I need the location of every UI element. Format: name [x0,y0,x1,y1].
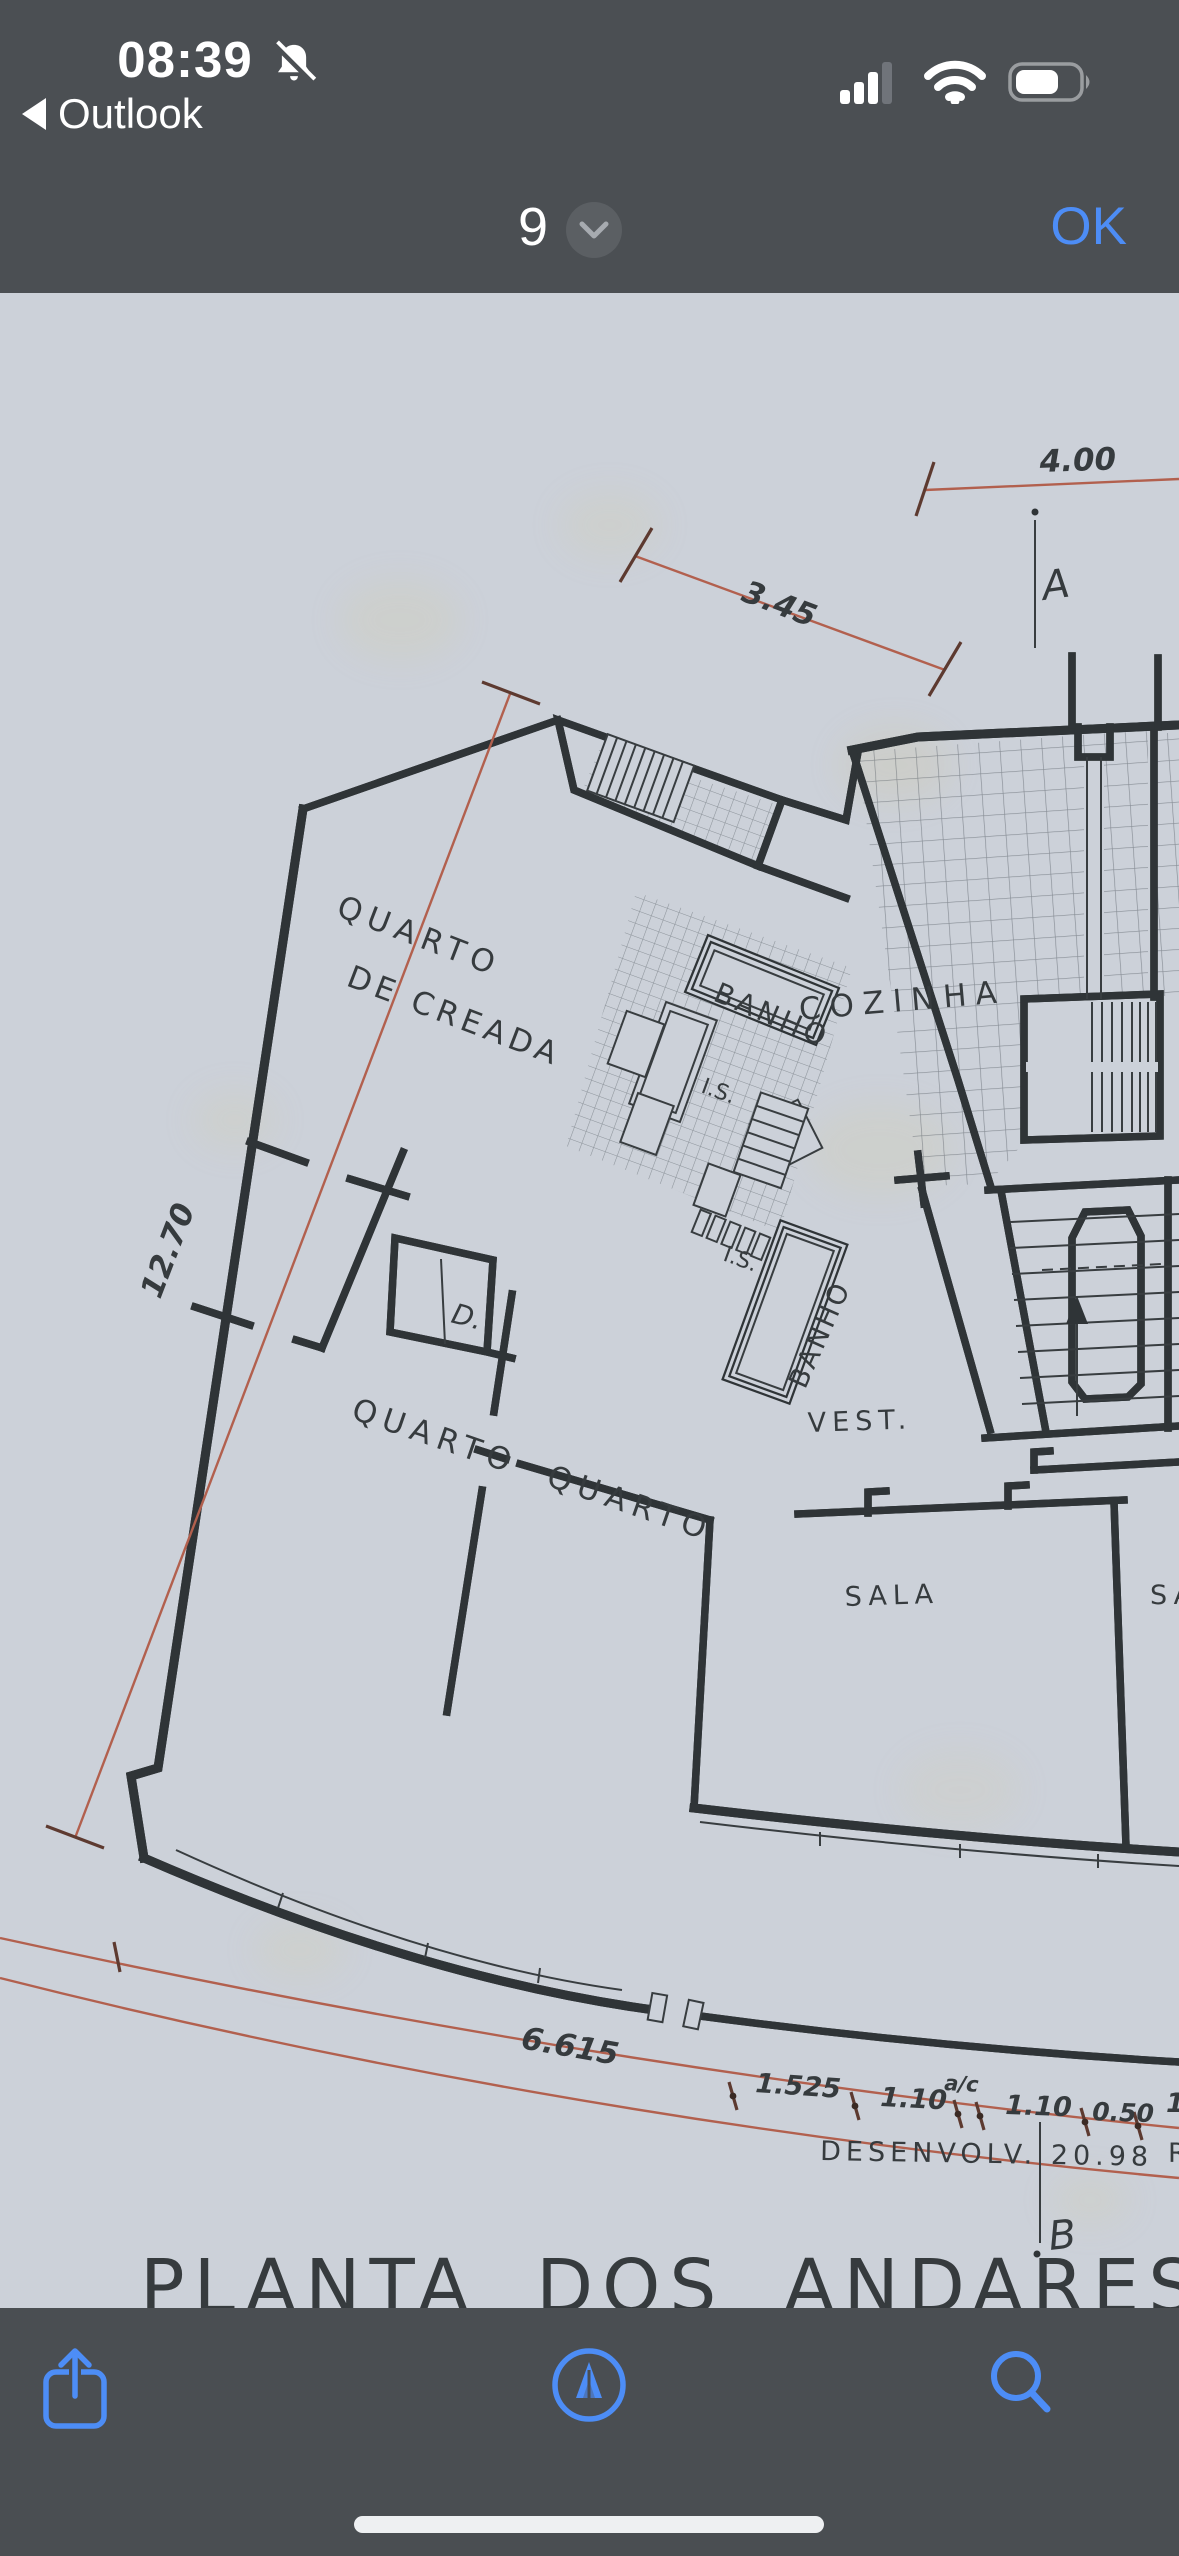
chevron-down-icon [579,220,609,240]
share-button[interactable] [40,2346,110,2437]
status-time: 08:39 [100,30,270,89]
back-triangle-icon [22,98,46,130]
share-icon [40,2346,110,2432]
dim-left-diagonal: 12.70 [134,1198,203,1302]
notifications-off-icon [268,38,320,95]
room-label-vestibule: VEST. [807,1404,913,1439]
dim-chain-4: 0.50 [1092,2097,1155,2128]
phone-screen: 08:39 Outlook [0,0,1179,2556]
page-dropdown-button[interactable] [566,202,622,258]
floor-plan-drawing: A B QUARTO DE CREADA BANHO I.S. I.S. BAN… [0,293,1179,2308]
search-button[interactable] [985,2346,1059,2425]
page-indicator: 9 [478,196,548,258]
wifi-icon [924,60,986,104]
dim-development: DESENVOLV. 20.98 [820,2136,1154,2173]
ok-button[interactable]: OK [1050,196,1127,257]
dimension-lines [0,462,1179,2178]
status-icons [840,60,1098,104]
room-label-maid2: DE CREADA [342,959,567,1074]
cellular-signal-icon [840,60,902,104]
dim-upper-diagonal: 3.45 [737,574,821,635]
dim-chain-partial: 1. [1166,2088,1179,2119]
back-to-app-button[interactable]: Outlook [22,90,203,138]
room-label-living: SALA [844,1579,939,1613]
battery-icon [1008,60,1098,104]
dim-development-partial: R [1168,2138,1179,2169]
dim-chain-2: 1.10 [880,2082,948,2116]
search-icon [985,2346,1059,2420]
markup-icon [550,2346,628,2424]
dim-top: 4.00 [1038,441,1117,480]
dim-bottom-left: 6.615 [519,2020,622,2072]
markup-button[interactable] [550,2346,628,2429]
dim-chain-1: 1.525 [755,2068,842,2105]
dim-chain-note: a/c [944,2071,980,2097]
back-app-label: Outlook [58,90,203,138]
dim-chain-3: 1.10 [1005,2090,1073,2123]
home-indicator[interactable] [354,2516,824,2533]
room-label-closet: D. [448,1297,486,1337]
drawing-title: PLANTA DOS ANDARES [140,2244,1179,2308]
section-marker-a: A [1036,561,1072,611]
bottom-toolbar [0,2308,1179,2556]
document-canvas[interactable]: A B QUARTO DE CREADA BANHO I.S. I.S. BAN… [0,293,1179,2308]
header-bar: 08:39 Outlook [0,0,1179,293]
room-label-living2: SA [1150,1580,1179,1611]
room-label-bedroom2: QUARTO [542,1459,717,1549]
